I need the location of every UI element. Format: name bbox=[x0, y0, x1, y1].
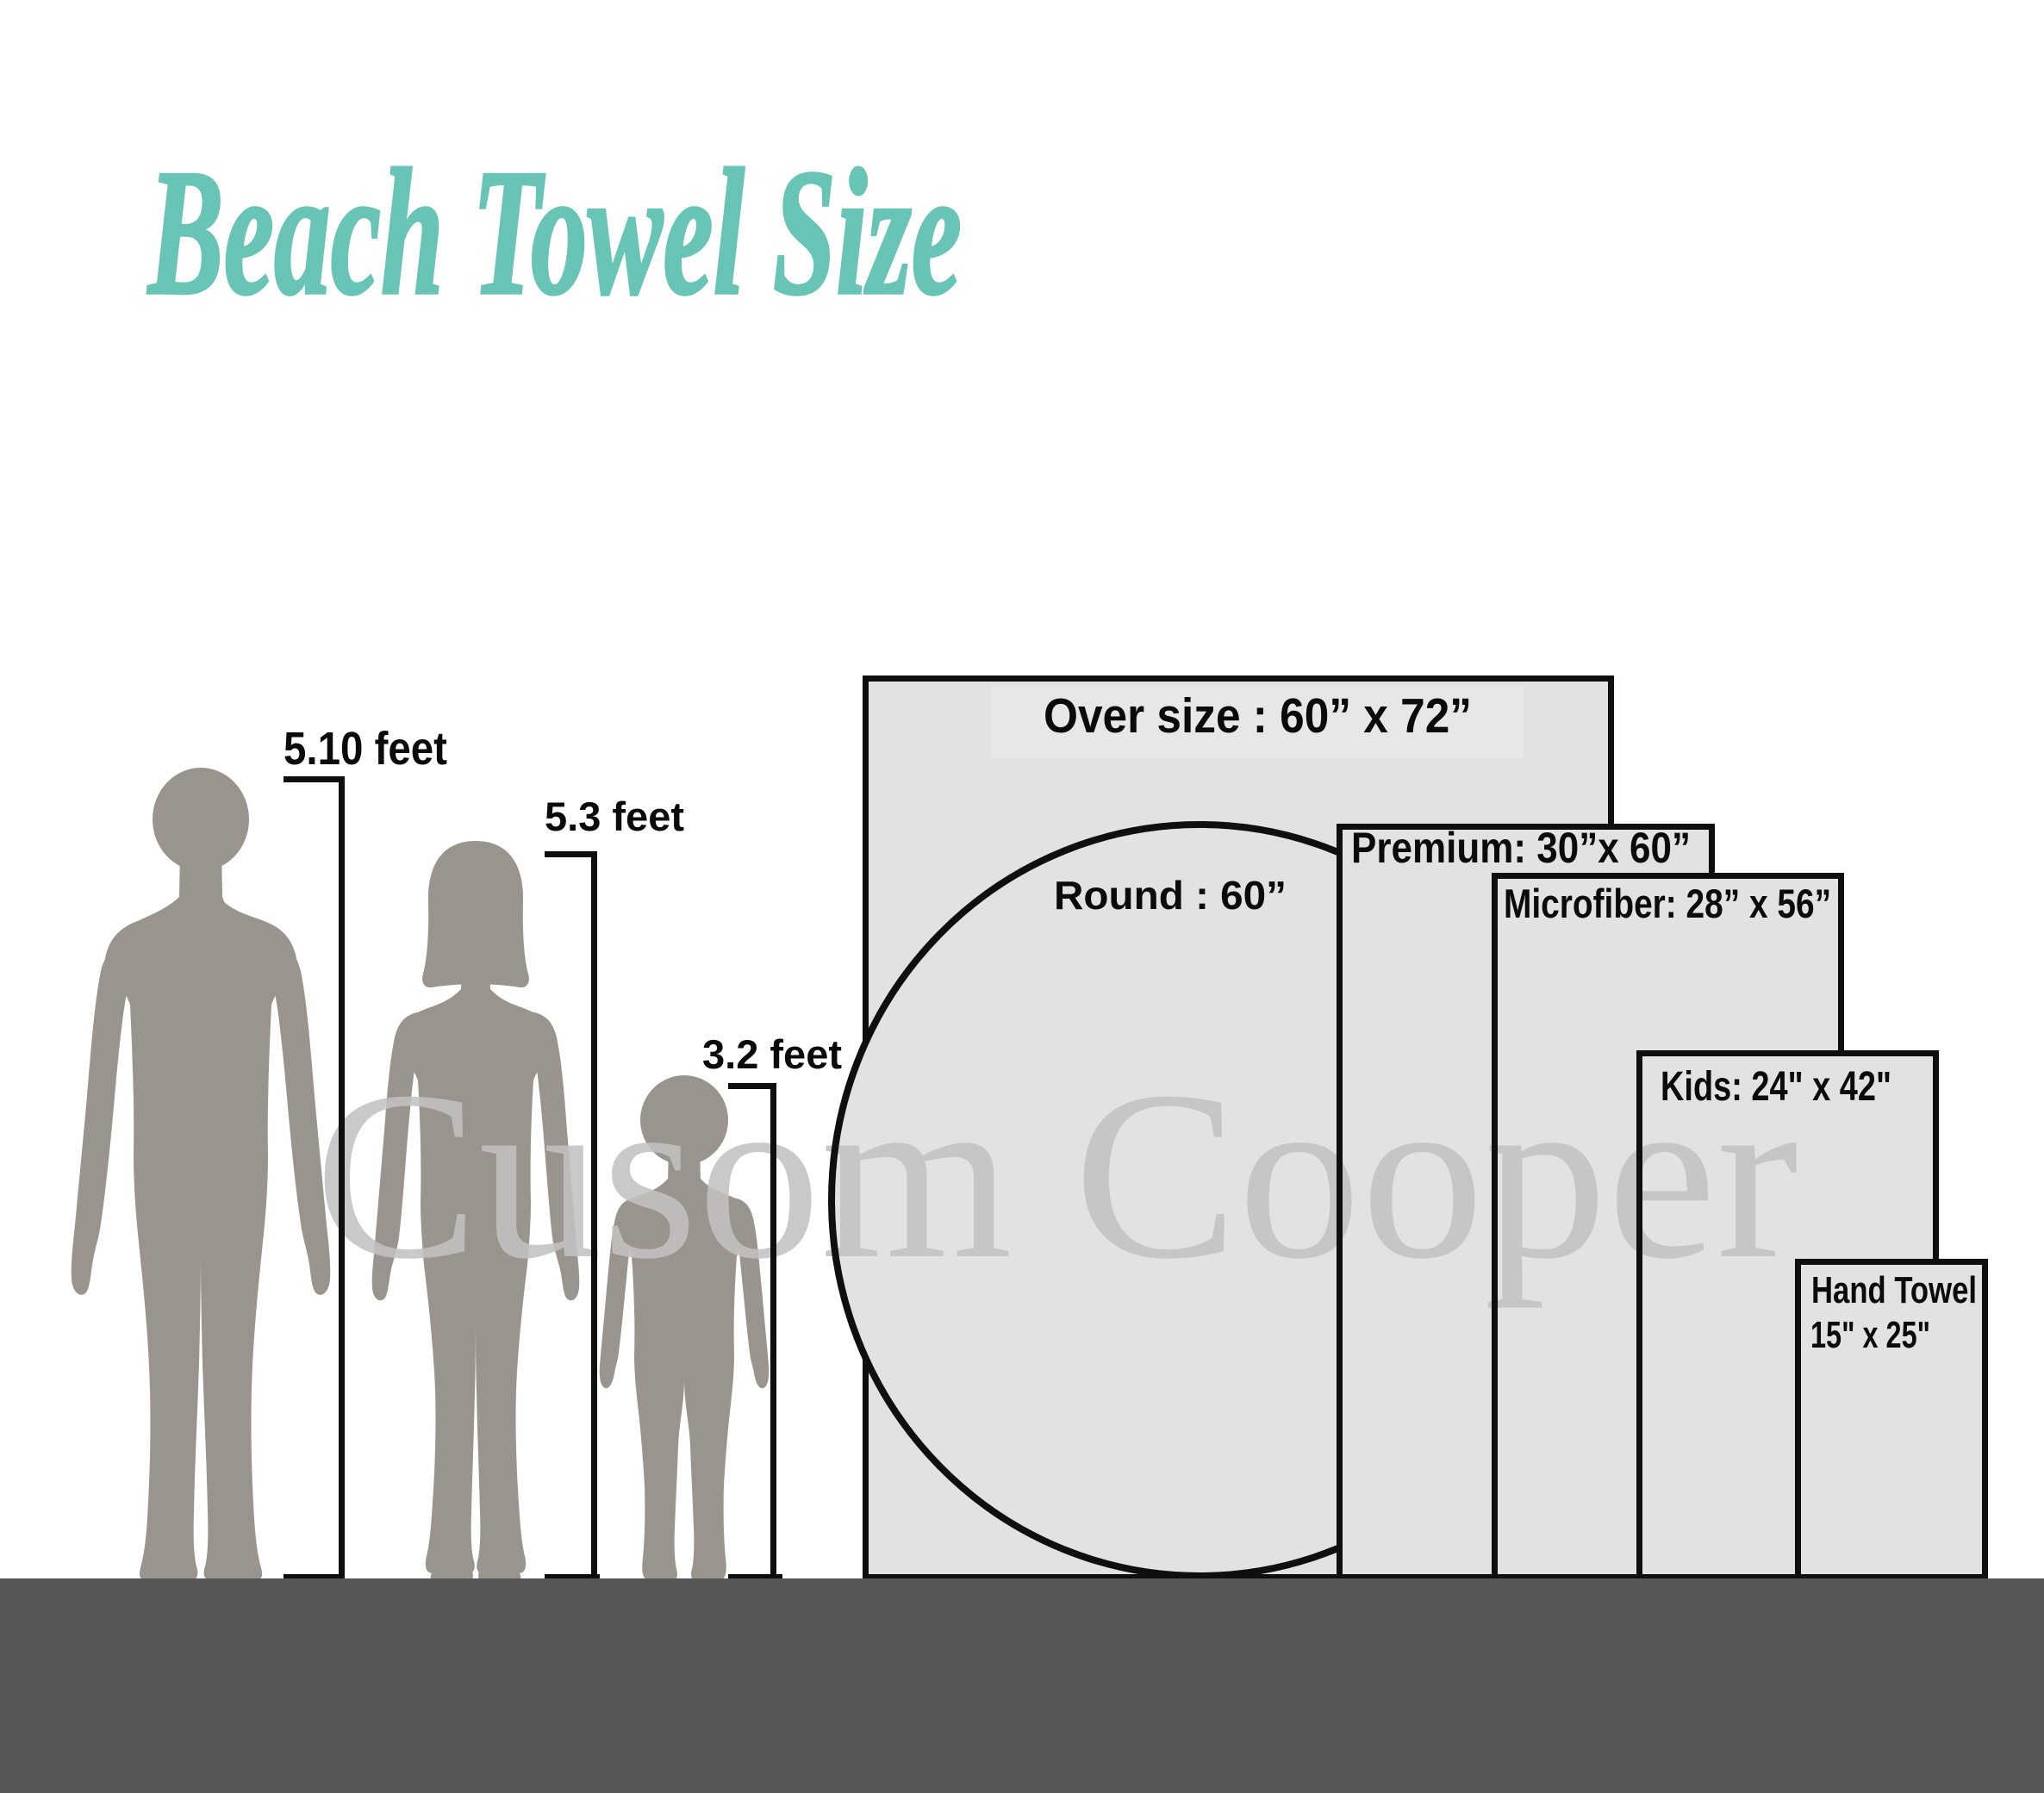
svg-text:Round : 60”: Round : 60” bbox=[1054, 873, 1287, 918]
svg-text:Beach Towel Size: Beach Towel Size bbox=[147, 133, 962, 333]
svg-text:Hand Towel: Hand Towel bbox=[1811, 1269, 1977, 1311]
svg-text:5.3 feet: 5.3 feet bbox=[545, 794, 684, 839]
svg-text:Kids: 24" x 42": Kids: 24" x 42" bbox=[1661, 1064, 1891, 1110]
svg-text:Microfiber: 28” x 56”: Microfiber: 28” x 56” bbox=[1504, 881, 1831, 926]
svg-text:5.10 feet: 5.10 feet bbox=[284, 723, 447, 775]
svg-text:Premium: 30”x 60”: Premium: 30”x 60” bbox=[1351, 824, 1691, 872]
svg-text:Cusom Cooper: Cusom Cooper bbox=[315, 1041, 1798, 1309]
svg-text:Over size : 60” x 72”: Over size : 60” x 72” bbox=[1044, 688, 1472, 744]
svg-text:3.2 feet: 3.2 feet bbox=[702, 1031, 842, 1077]
svg-text:15" x 25": 15" x 25" bbox=[1810, 1314, 1930, 1356]
